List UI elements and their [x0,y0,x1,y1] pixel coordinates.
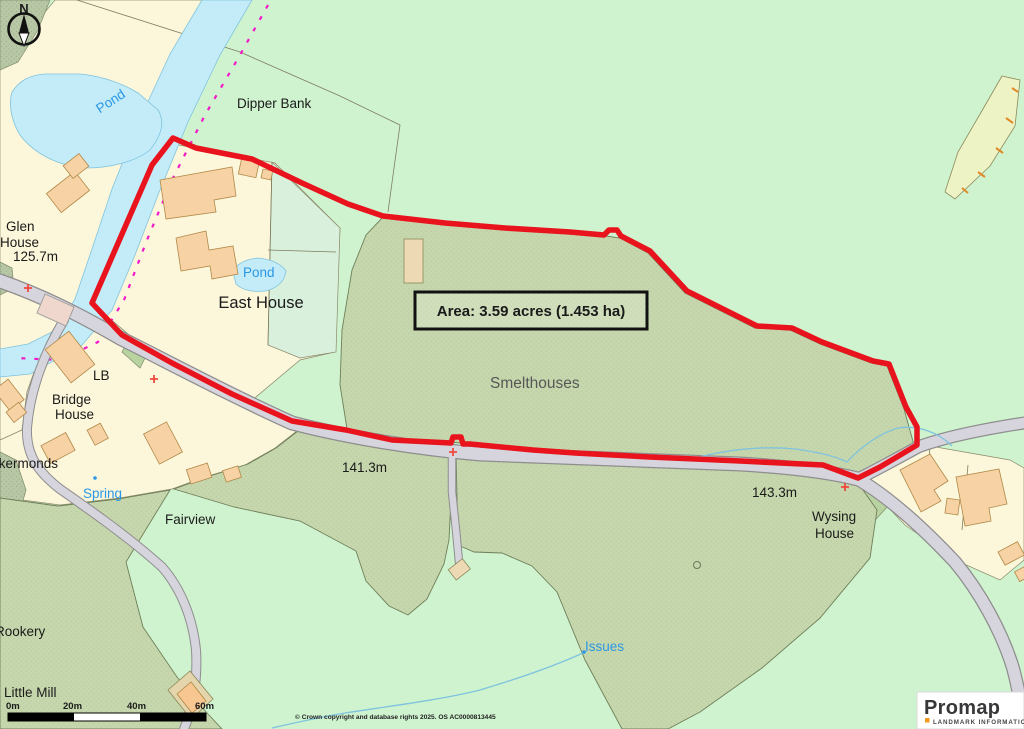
wysing-house-label-1: Wysing [812,509,856,524]
east-house-label: East House [218,294,303,312]
smelthouses-label: Smelthouses [490,375,580,392]
spring-marker [93,476,97,480]
bridge-house-label-2: House [55,407,94,422]
area-box: Area: 3.59 acres (1.453 ha) [415,292,647,329]
bridge-house-label-1: Bridge [52,392,91,407]
spot-height-125: 125.7m [13,249,58,264]
issues-label: Issues [585,639,624,654]
promap-logo: Promap LANDMARK INFORMATION [917,692,1024,729]
wysing-house-label-2: House [815,526,854,541]
landmark-tagline: LANDMARK INFORMATION [933,719,1024,726]
scale-tick-60: 60m [195,701,214,712]
landmark-dot-icon [925,718,930,723]
lb-label: LB [93,368,110,383]
map-canvas[interactable]: Pond Dipper Bank Glen House 125.7m Pond … [0,0,1024,729]
little-mill-label: Little Mill [4,685,57,700]
spring-label: Spring [83,486,122,501]
cockermonds-label: ckermonds [0,456,58,471]
spot-height-143: 143.3m [752,485,797,500]
glen-house-label-1: Glen [6,219,35,234]
glen-house-label-2: House [0,235,39,250]
scale-tick-20: 20m [63,701,82,712]
promap-plan-export: Pond Dipper Bank Glen House 125.7m Pond … [0,0,1024,729]
fairview-label: Fairview [165,512,216,527]
dipper-bank-label: Dipper Bank [237,96,312,111]
scale-tick-0: 0m [6,701,20,712]
spot-height-141: 141.3m [342,460,387,475]
rookery-label: Rookery [0,624,46,639]
pond-lower-label: Pond [243,265,275,280]
scale-tick-40: 40m [127,701,146,712]
promap-brand-text: Promap [924,697,1000,719]
area-label: Area: 3.59 acres (1.453 ha) [437,303,625,320]
copyright-text: © Crown copyright and database rights 20… [295,713,496,721]
